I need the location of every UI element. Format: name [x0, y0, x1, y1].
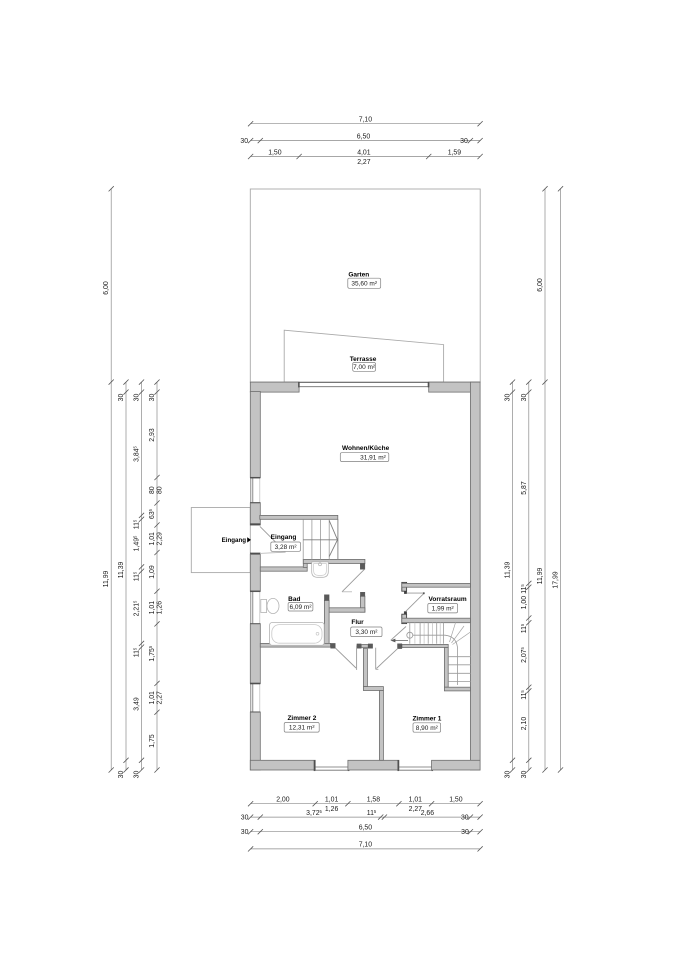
svg-text:3,49: 3,49	[134, 697, 141, 711]
svg-text:6,00: 6,00	[537, 278, 544, 292]
svg-text:3,30 m²: 3,30 m²	[355, 629, 378, 636]
svg-text:1,01: 1,01	[409, 797, 423, 804]
svg-text:30: 30	[505, 394, 512, 402]
svg-text:Eingang: Eingang	[271, 534, 297, 541]
svg-text:17,99: 17,99	[553, 571, 560, 588]
svg-text:30: 30	[505, 771, 512, 779]
svg-text:2,29: 2,29	[157, 532, 164, 546]
svg-text:2,27: 2,27	[157, 691, 164, 705]
svg-text:6,09 m²: 6,09 m²	[289, 604, 312, 611]
svg-text:30: 30	[521, 771, 528, 779]
svg-text:Wohnen/Küche: Wohnen/Küche	[342, 445, 390, 452]
svg-text:30: 30	[118, 771, 125, 779]
svg-text:Flur: Flur	[351, 619, 364, 626]
svg-text:1,26: 1,26	[157, 601, 164, 615]
svg-text:3,28 m²: 3,28 m²	[275, 544, 298, 551]
svg-text:30: 30	[241, 829, 249, 836]
svg-text:7,10: 7,10	[359, 117, 373, 124]
svg-text:Eingang: Eingang	[222, 537, 247, 544]
svg-text:2,27: 2,27	[357, 159, 371, 166]
svg-text:2,00: 2,00	[276, 797, 290, 804]
svg-text:11,99: 11,99	[103, 570, 110, 587]
svg-text:1,75: 1,75	[149, 734, 156, 748]
svg-text:30: 30	[134, 394, 141, 402]
svg-text:1,01: 1,01	[325, 797, 339, 804]
svg-text:5,87: 5,87	[521, 481, 528, 495]
svg-text:1,58: 1,58	[367, 797, 381, 804]
svg-text:7,00 m²: 7,00 m²	[353, 364, 376, 371]
svg-text:80: 80	[149, 486, 156, 494]
svg-text:Vorratsraum: Vorratsraum	[429, 596, 467, 603]
svg-text:11,99: 11,99	[537, 567, 544, 584]
svg-text:1,50: 1,50	[449, 797, 463, 804]
svg-text:30: 30	[461, 814, 469, 821]
svg-text:1,59: 1,59	[448, 149, 462, 156]
svg-text:Zimmer 2: Zimmer 2	[287, 715, 316, 722]
svg-text:30: 30	[241, 814, 249, 821]
svg-text:4,01: 4,01	[357, 149, 371, 156]
svg-text:6,50: 6,50	[357, 133, 371, 140]
svg-text:7,10: 7,10	[359, 842, 373, 849]
svg-text:1,01: 1,01	[149, 601, 156, 615]
svg-text:6,00: 6,00	[103, 281, 110, 295]
svg-text:30: 30	[134, 771, 141, 779]
svg-text:1,01: 1,01	[149, 691, 156, 705]
svg-text:8,90 m²: 8,90 m²	[416, 725, 439, 732]
svg-text:30: 30	[118, 394, 125, 402]
svg-text:2,10: 2,10	[521, 717, 528, 731]
svg-text:30: 30	[149, 394, 156, 402]
svg-text:Zimmer 1: Zimmer 1	[412, 715, 441, 722]
svg-text:6,50: 6,50	[359, 825, 373, 832]
svg-text:11,39: 11,39	[505, 561, 512, 578]
svg-text:35,60 m²: 35,60 m²	[351, 281, 377, 288]
svg-text:1,26: 1,26	[325, 806, 339, 813]
svg-text:31,91 m²: 31,91 m²	[360, 454, 386, 461]
svg-text:2,93: 2,93	[149, 428, 156, 442]
svg-text:11,39: 11,39	[118, 561, 125, 578]
svg-text:30: 30	[460, 138, 468, 145]
svg-text:1,00: 1,00	[521, 596, 528, 610]
svg-text:1,09: 1,09	[149, 565, 156, 579]
svg-text:1,01: 1,01	[149, 532, 156, 546]
svg-text:12,31 m²: 12,31 m²	[289, 725, 315, 732]
svg-text:30: 30	[461, 829, 469, 836]
svg-text:1,50: 1,50	[268, 149, 282, 156]
svg-text:2,66: 2,66	[421, 810, 435, 817]
svg-text:1,99 m²: 1,99 m²	[432, 606, 455, 613]
svg-text:Garten: Garten	[348, 272, 369, 279]
svg-text:Terrasse: Terrasse	[350, 356, 377, 363]
svg-text:30: 30	[521, 394, 528, 402]
svg-text:30: 30	[240, 138, 248, 145]
svg-text:80: 80	[157, 486, 164, 494]
